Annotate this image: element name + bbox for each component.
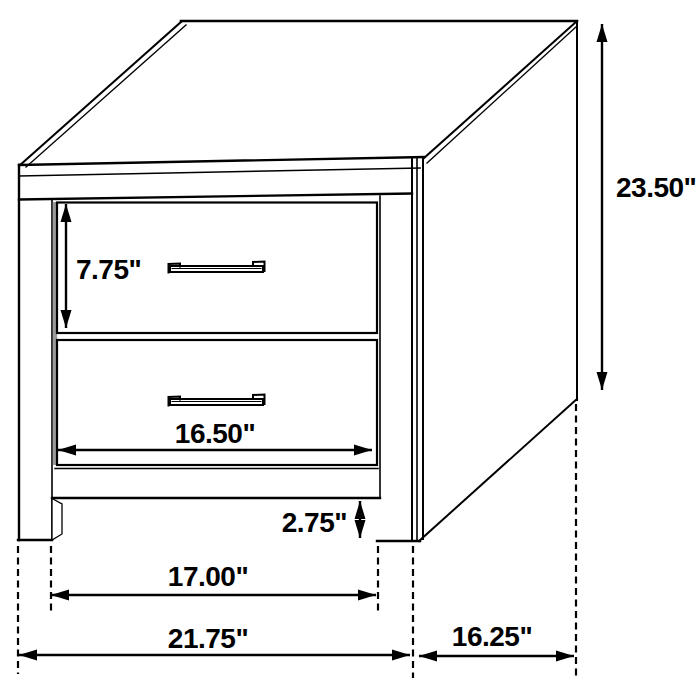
dim-overall-depth-label: 16.25" (452, 621, 532, 652)
dim-leg-opening-label: 17.00" (168, 561, 248, 592)
dim-overall-height-label: 23.50" (616, 172, 696, 203)
dim-leg-opening: 17.00" (51, 561, 376, 595)
dim-base-clearance: 2.75" (282, 501, 360, 538)
dim-base-clearance-label: 2.75" (282, 507, 347, 538)
top-rail-bottom-edge (19, 194, 412, 200)
top-front-thickness-edge (19, 168, 420, 176)
diagram-canvas: 7.75" 16.50" 2.75" 17.00" 21.75" 16.25" (0, 0, 700, 700)
left-leg (18, 499, 62, 541)
dim-overall-height: 23.50" (602, 24, 696, 390)
dim-drawer-height-label: 7.75" (76, 254, 141, 285)
dim-drawer-width-label: 16.50" (175, 418, 255, 449)
top-face-surface (19, 21, 577, 165)
top-face (19, 21, 577, 176)
side-bottom-slant-edge (419, 399, 577, 541)
left-leg-side-face (52, 499, 62, 541)
dim-overall-width-label: 21.75" (168, 623, 248, 654)
nightstand-diagram: 7.75" 16.50" 2.75" 17.00" 21.75" 16.25" (0, 0, 700, 700)
dim-overall-depth: 16.25" (419, 621, 574, 656)
dim-overall-width: 21.75" (19, 623, 410, 655)
